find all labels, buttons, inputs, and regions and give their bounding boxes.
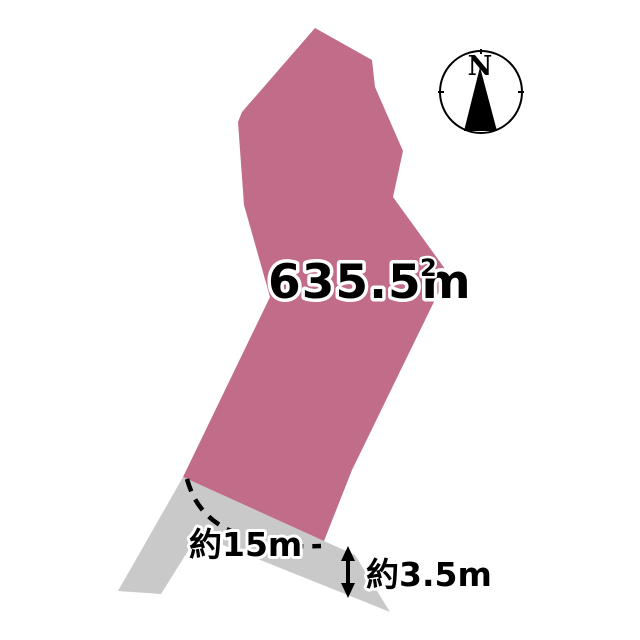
diagram-canvas: 635.5m 2 約15m 約3.5m N [0, 0, 640, 640]
frontage-label: 約15m [189, 525, 302, 564]
road-width-label: 約3.5m [366, 555, 492, 594]
area-exponent: 2 [420, 254, 437, 282]
land-plot-diagram: 635.5m 2 約15m 約3.5m N [0, 0, 640, 640]
area-label: 635.5m [268, 255, 472, 310]
compass: N [438, 49, 524, 133]
compass-north-label: N [468, 51, 493, 82]
